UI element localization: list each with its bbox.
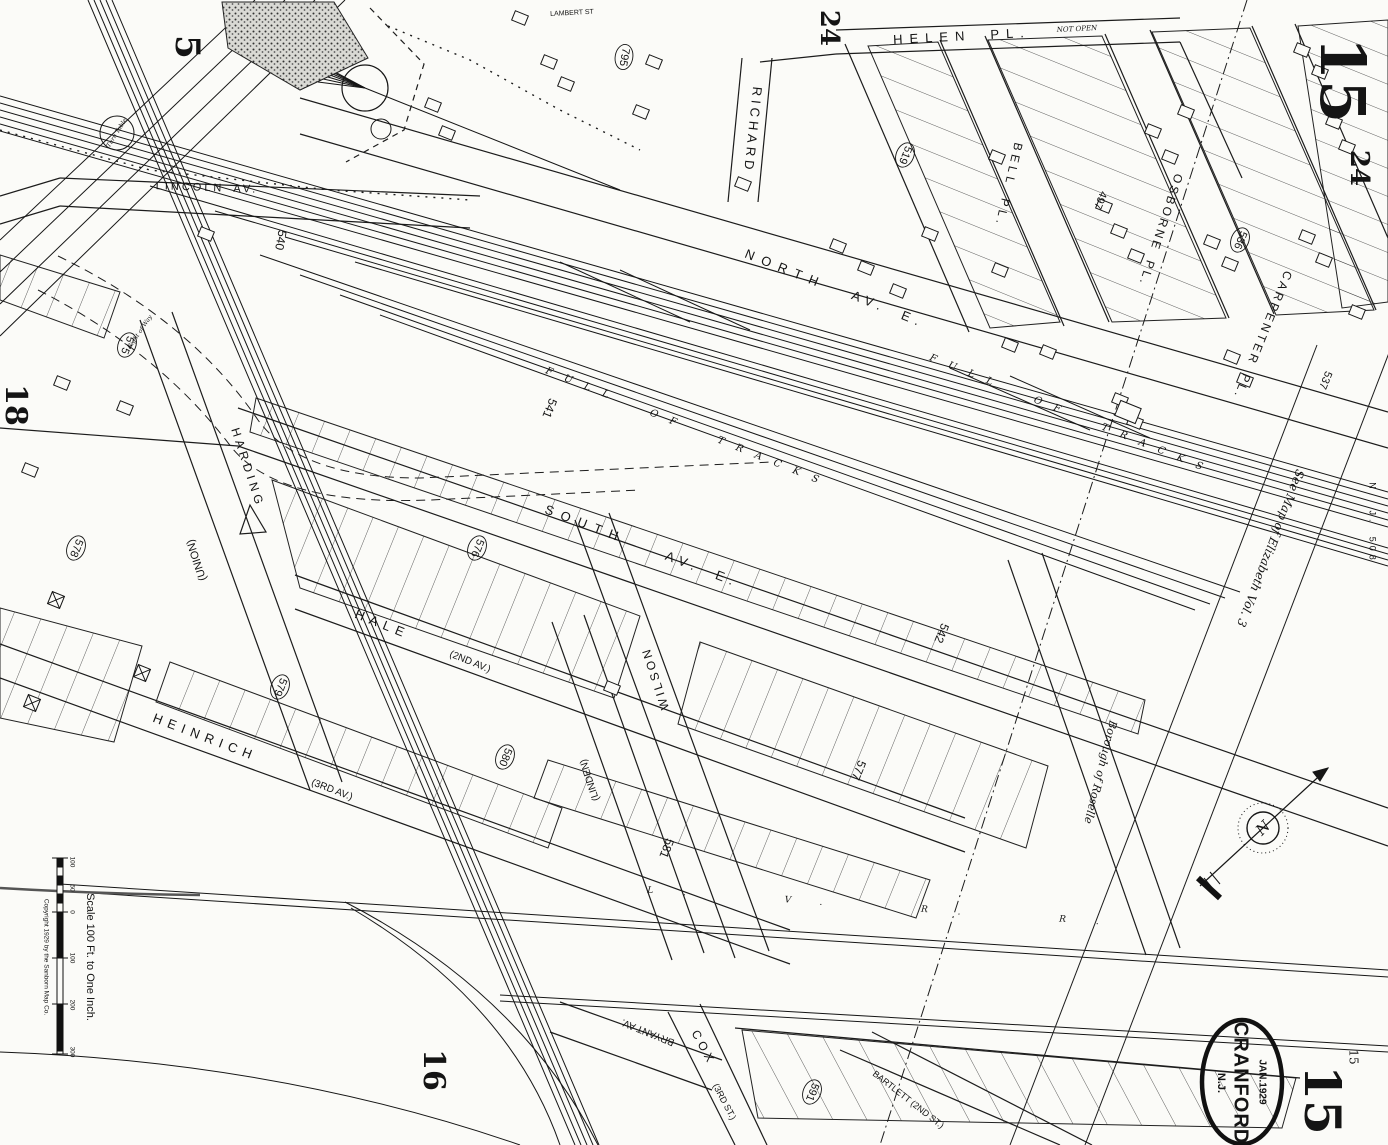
compass-bold-mark — [1198, 878, 1220, 898]
street-harding-alias: (UNION) — [185, 538, 210, 582]
scale-tick-100a: 100 — [68, 857, 75, 868]
building-outline — [512, 11, 529, 26]
building-outline — [735, 177, 752, 192]
street-harding: HARDING — [228, 426, 267, 510]
building-outline — [1040, 345, 1057, 360]
lot-blocks-layer — [0, 255, 1145, 918]
building-outline — [117, 401, 134, 416]
sanborn-map-sheet: N HELEN PL.NOT OPENLAMBERT STRICHARDBELL… — [0, 0, 1388, 1145]
lot-block-bottom-triangle — [742, 1030, 1296, 1128]
block-541: 541 — [539, 396, 560, 420]
scale-tick-50: 50 — [68, 884, 75, 892]
block-581: 581 — [656, 836, 677, 860]
scale-tick-200: 200 — [68, 1000, 75, 1011]
building-outline — [22, 463, 39, 478]
adjoining-sheet-24-top: 24 — [814, 10, 844, 46]
block-537: 537 — [1316, 369, 1334, 391]
building-outline — [541, 55, 558, 70]
rail-yard-details — [100, 2, 391, 150]
elizabeth-map-edge-line-2 — [1010, 345, 1317, 1145]
building-outline — [922, 227, 939, 242]
building-outline-crossed — [48, 592, 65, 609]
street-heinrich-alias: (3RD AV.) — [310, 777, 354, 803]
building-outline — [1145, 124, 1162, 139]
block-540: 540 — [272, 229, 289, 251]
street-north-av-word2: AV. E. — [849, 287, 927, 330]
building-outline — [1162, 150, 1179, 165]
note-nj-508: N. J. 508 — [1368, 482, 1378, 564]
street-lambert-st: LAMBERT ST — [550, 9, 595, 18]
note-turn-table: Turn Table — [105, 117, 129, 149]
sheet-number-top: 15 — [1306, 37, 1379, 123]
adjoining-sheet-16: 16 — [416, 1049, 451, 1091]
stamp-date: JAN.1929 — [1256, 1059, 1267, 1104]
building-outline — [989, 150, 1006, 165]
building-outline — [1224, 350, 1241, 365]
scale-tick-0: 0 — [68, 910, 75, 914]
note-full-of-tracks-2: FULL OF TRACKS — [927, 352, 1216, 477]
scale-tick-300: 300 — [68, 1047, 75, 1058]
scale-bar — [52, 858, 68, 1054]
block-795: 795 — [617, 47, 632, 67]
scale-caption: Scale 100 Ft. to One Inch. — [84, 893, 96, 1021]
street-cox-alias: (3RD ST.) — [711, 1082, 738, 1122]
adjoining-sheet-24-right: 24 — [1344, 150, 1374, 186]
building-outline — [1222, 257, 1239, 272]
adjoining-sheet-5: 5 — [167, 35, 207, 59]
building-outline — [198, 227, 215, 242]
building-outline — [425, 98, 442, 113]
note-not-open: NOT OPEN — [1056, 24, 1099, 34]
sheet-number-bottom-small: 15 — [1347, 1049, 1361, 1064]
building-outline — [890, 284, 907, 299]
street-bryant-av: BRYANT AV. — [620, 1016, 676, 1047]
adjoining-sheet-18: 18 — [0, 384, 33, 426]
street-north-av-word1: NORTH — [743, 246, 828, 292]
note-see-map-elizabeth: See Map of Elizabeth Vol. 3 — [1234, 467, 1307, 629]
map-canvas: N HELEN PL.NOT OPENLAMBERT STRICHARDBELL… — [0, 0, 1388, 1145]
building-outline — [558, 77, 575, 92]
copyright-note: Copyright 1929 by the Sanborn Map Co. — [42, 899, 49, 1016]
scale-tick-100b: 100 — [68, 953, 75, 964]
building-outline — [633, 105, 650, 120]
building-outline — [54, 376, 71, 391]
street-lincoln-av: LINCOLN AV. — [156, 180, 259, 196]
building-outline — [646, 55, 663, 70]
building-outline — [1002, 338, 1019, 353]
note-borough-of-roselle: Borough of Roselle — [1081, 718, 1120, 826]
stamp-state: N.J. — [1215, 1073, 1227, 1093]
stamp-city: CRANFORD — [1230, 1022, 1252, 1144]
building-outline — [439, 126, 456, 141]
sheet-number-bottom: 15 — [1293, 1065, 1352, 1135]
compass-rose: N — [1198, 768, 1328, 898]
coal-trestle-shaded-area — [222, 2, 368, 90]
building-outline — [1204, 235, 1221, 250]
note-full-of-tracks-1: FULL OF TRACKS — [543, 365, 832, 490]
